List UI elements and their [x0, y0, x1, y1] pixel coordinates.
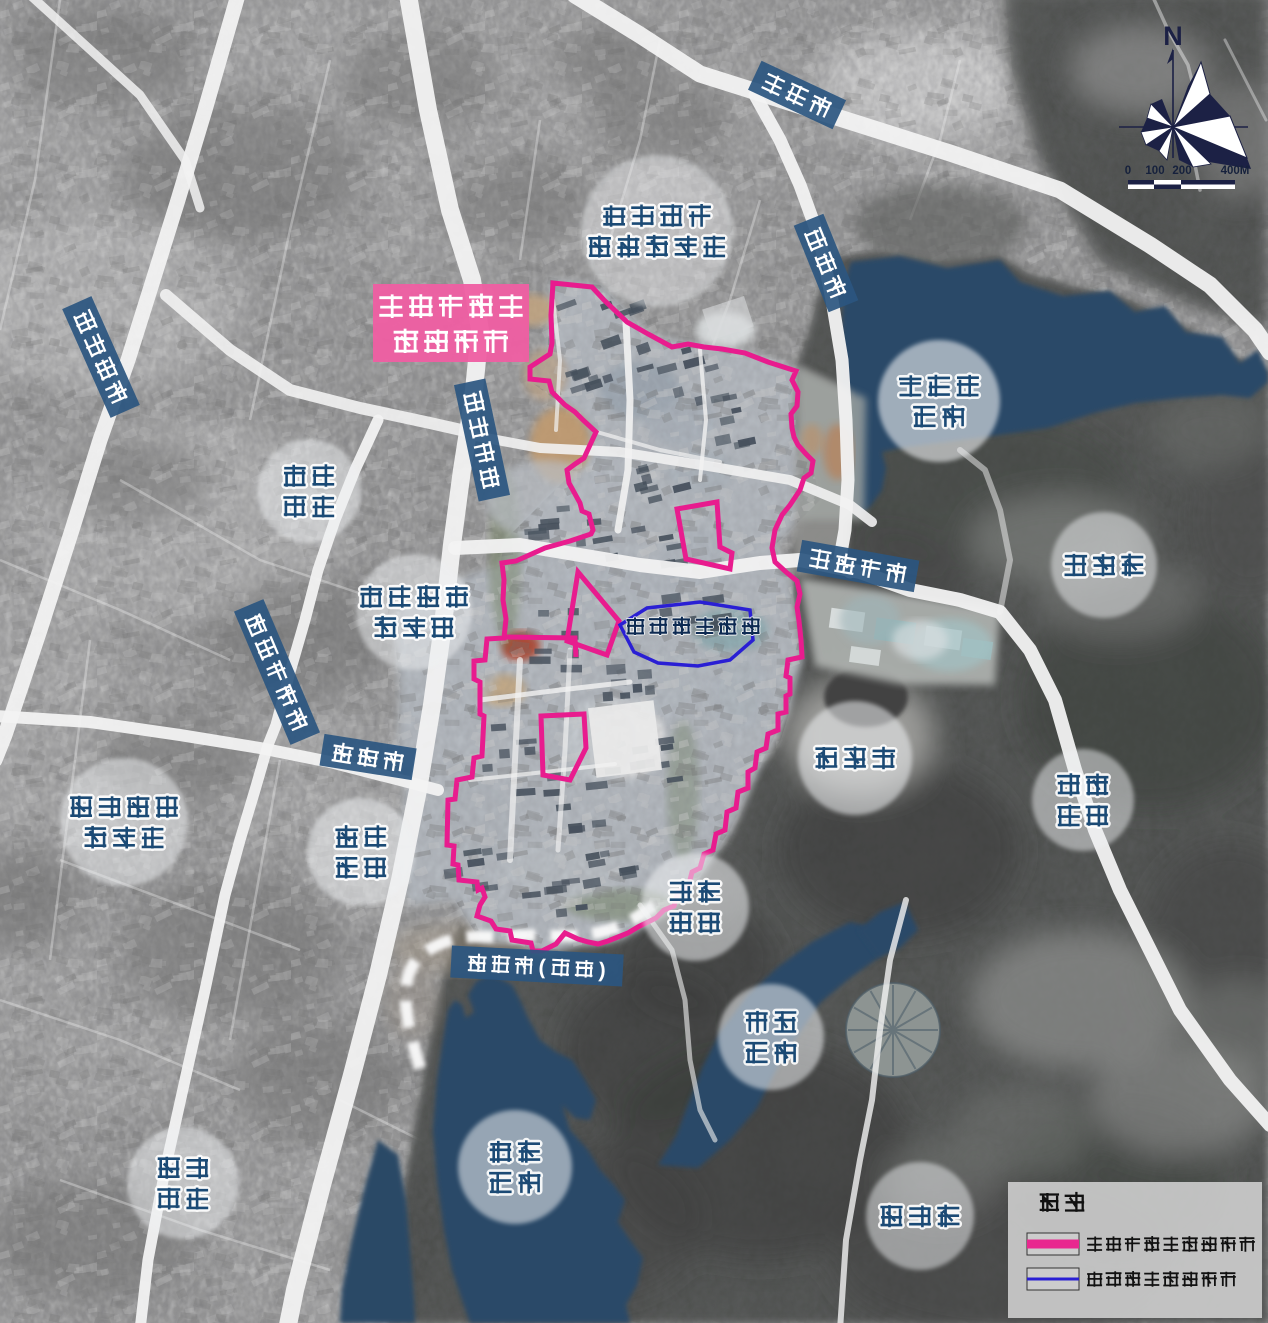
svg-text:N: N — [1163, 21, 1183, 51]
svg-text:0: 0 — [1125, 165, 1131, 177]
svg-text:400M: 400M — [1221, 165, 1250, 177]
svg-text:(: ( — [538, 956, 546, 979]
svg-text:): ) — [598, 959, 606, 982]
svg-text:100: 100 — [1145, 165, 1164, 177]
svg-text:200: 200 — [1172, 165, 1191, 177]
